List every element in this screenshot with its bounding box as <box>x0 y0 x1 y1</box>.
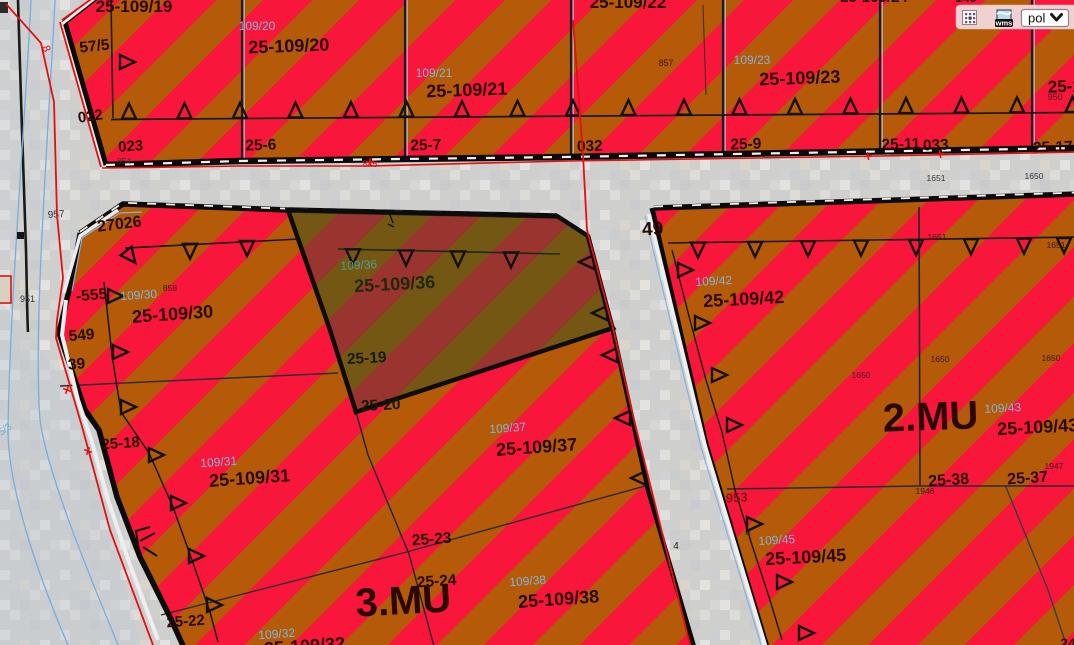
svg-text:25-109/42: 25-109/42 <box>703 287 785 311</box>
svg-text:25-17: 25-17 <box>1033 138 1073 156</box>
svg-text:25-6: 25-6 <box>245 136 277 154</box>
svg-text:25-7: 25-7 <box>410 136 442 154</box>
svg-text:25-11: 25-11 <box>881 135 921 153</box>
svg-text:1650: 1650 <box>852 370 871 380</box>
svg-text:25-109/24: 25-109/24 <box>840 0 908 6</box>
svg-text:109/23: 109/23 <box>734 53 771 67</box>
svg-text:57/5: 57/5 <box>79 36 111 56</box>
svg-text:wms: wms <box>995 19 1013 28</box>
svg-text:845: 845 <box>362 159 377 169</box>
svg-text:24: 24 <box>1060 635 1074 645</box>
svg-text:pol: pol <box>1028 11 1045 26</box>
svg-text:1651: 1651 <box>927 173 946 183</box>
svg-text:109/30: 109/30 <box>120 287 158 304</box>
svg-text:4: 4 <box>745 528 751 539</box>
svg-text:950: 950 <box>1047 92 1062 102</box>
svg-text:109/38: 109/38 <box>509 573 547 590</box>
svg-text:858: 858 <box>163 283 177 293</box>
svg-text:1650: 1650 <box>1025 171 1044 181</box>
svg-text:25-18: 25-18 <box>101 434 140 454</box>
svg-text:49: 49 <box>642 218 664 240</box>
svg-text:25-109/22: 25-109/22 <box>590 0 667 12</box>
svg-text:109/37: 109/37 <box>489 420 527 437</box>
svg-text:1946: 1946 <box>916 486 935 496</box>
svg-text:854: 854 <box>117 156 131 166</box>
svg-text:149: 149 <box>955 0 977 5</box>
svg-text:109/42: 109/42 <box>695 273 733 289</box>
svg-text:023: 023 <box>118 137 144 156</box>
svg-text:1947: 1947 <box>1045 461 1064 471</box>
svg-text:39: 39 <box>67 355 86 373</box>
svg-text:109/20: 109/20 <box>239 19 276 33</box>
svg-text:25-109/43: 25-109/43 <box>997 415 1074 439</box>
svg-text:25-37: 25-37 <box>1007 469 1049 489</box>
svg-text:109/21: 109/21 <box>416 66 453 80</box>
svg-text:25-9: 25-9 <box>730 135 762 153</box>
svg-text:25-109/23: 25-109/23 <box>759 67 841 90</box>
svg-text:25-19: 25-19 <box>347 349 388 368</box>
svg-text:25-109/36: 25-109/36 <box>354 272 436 296</box>
svg-text:25-22: 25-22 <box>166 612 205 632</box>
svg-text:2.MU: 2.MU <box>882 393 979 440</box>
svg-text:1650: 1650 <box>1042 353 1061 363</box>
svg-text:4: 4 <box>673 541 679 552</box>
svg-text:25-109/19: 25-109/19 <box>96 0 173 16</box>
svg-text:1650: 1650 <box>931 354 950 364</box>
svg-text:25-109/45: 25-109/45 <box>765 545 847 569</box>
svg-text:951: 951 <box>20 294 35 304</box>
svg-text:109/45: 109/45 <box>758 532 796 548</box>
svg-text:25-109/20: 25-109/20 <box>248 35 330 58</box>
svg-text:109/43: 109/43 <box>984 400 1022 416</box>
svg-text:25-20: 25-20 <box>361 396 401 415</box>
svg-text:857: 857 <box>658 58 673 68</box>
svg-text:-555: -555 <box>75 286 108 306</box>
svg-text:109/31: 109/31 <box>200 454 238 471</box>
svg-text:109/36: 109/36 <box>340 257 378 273</box>
svg-text:033: 033 <box>923 137 950 155</box>
svg-text:549: 549 <box>68 326 96 345</box>
svg-text:032: 032 <box>577 138 603 156</box>
svg-text:25-109/21: 25-109/21 <box>426 79 508 102</box>
svg-text:1651: 1651 <box>928 232 947 242</box>
svg-text:25-24: 25-24 <box>416 572 457 592</box>
svg-text:25-23: 25-23 <box>411 530 452 550</box>
svg-text:953: 953 <box>726 489 748 505</box>
svg-text:1651: 1651 <box>1047 240 1066 250</box>
svg-text:022: 022 <box>77 106 104 126</box>
